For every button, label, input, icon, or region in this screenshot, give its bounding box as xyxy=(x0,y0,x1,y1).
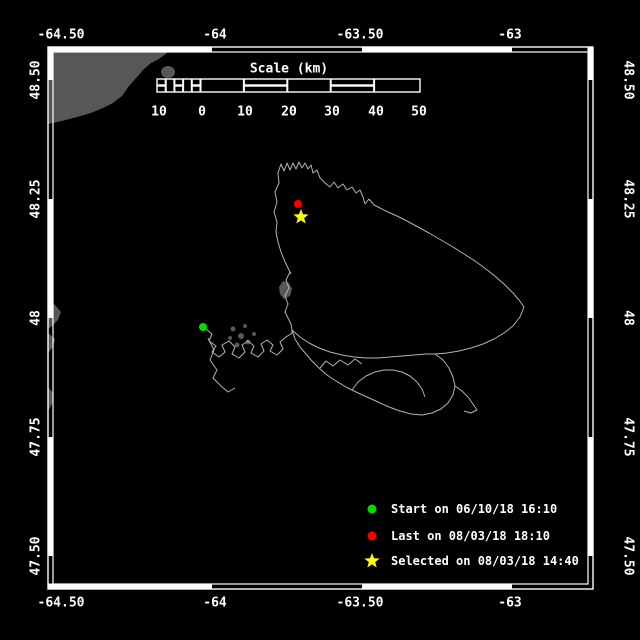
map-plot xyxy=(0,0,640,640)
legend-last-dot-icon xyxy=(368,532,377,541)
scale-tick-6: 40 xyxy=(368,105,384,120)
scale-bar-title: Scale (km) xyxy=(250,62,328,77)
lon-label-bottom-2: -64 xyxy=(203,596,226,611)
last-marker xyxy=(294,200,302,208)
island-top-left xyxy=(161,66,175,78)
scale-tick-4: 20 xyxy=(281,105,297,120)
islet xyxy=(252,332,256,336)
selected-marker-star-icon xyxy=(293,209,308,224)
lat-label-left-5: 47.50 xyxy=(29,536,44,575)
scale-bar xyxy=(157,79,420,92)
lon-label-top-3: -63.50 xyxy=(337,28,384,43)
lat-label-right-3: 48 xyxy=(621,310,636,326)
float-track xyxy=(206,162,524,415)
lat-label-right-4: 47.75 xyxy=(621,417,636,456)
islet xyxy=(231,327,236,332)
scale-tick-2: 0 xyxy=(198,105,206,120)
scale-tick-3: 10 xyxy=(237,105,253,120)
start-marker xyxy=(199,323,207,331)
lat-label-left-2: 48.25 xyxy=(29,179,44,218)
islet xyxy=(238,333,244,339)
legend-selected-star-icon xyxy=(364,553,379,568)
legend-label-start: Start on 06/10/18 16:10 xyxy=(391,502,557,516)
legend-label-selected: Selected on 08/03/18 14:40 xyxy=(391,554,579,568)
trajectory-map-canvas: -64.50 -64 -63.50 -63 -64.50 -64 -63.50 … xyxy=(0,0,640,640)
lat-label-right-1: 48.50 xyxy=(621,60,636,99)
lon-label-bottom-4: -63 xyxy=(498,596,521,611)
lon-label-bottom-3: -63.50 xyxy=(337,596,384,611)
scale-tick-7: 50 xyxy=(411,105,427,120)
lon-label-top-4: -63 xyxy=(498,28,521,43)
islet xyxy=(243,324,247,328)
lon-label-top-1: -64.50 xyxy=(38,28,85,43)
scale-tick-1: 10 xyxy=(151,105,167,120)
scale-tick-5: 30 xyxy=(324,105,340,120)
lon-label-top-2: -64 xyxy=(203,28,226,43)
islet xyxy=(228,336,232,340)
legend-markers xyxy=(364,505,379,568)
lat-label-left-1: 48.50 xyxy=(29,60,44,99)
land-masses xyxy=(48,47,292,411)
legend-start-dot-icon xyxy=(368,505,377,514)
lat-label-left-4: 47.75 xyxy=(29,417,44,456)
lon-label-bottom-1: -64.50 xyxy=(38,596,85,611)
map-markers xyxy=(199,200,309,331)
lat-label-right-5: 47.50 xyxy=(621,536,636,575)
legend-label-last: Last on 08/03/18 18:10 xyxy=(391,529,550,543)
land-left-edge-2 xyxy=(48,333,55,353)
lat-label-left-3: 48 xyxy=(29,310,44,326)
lat-label-right-2: 48.25 xyxy=(621,179,636,218)
